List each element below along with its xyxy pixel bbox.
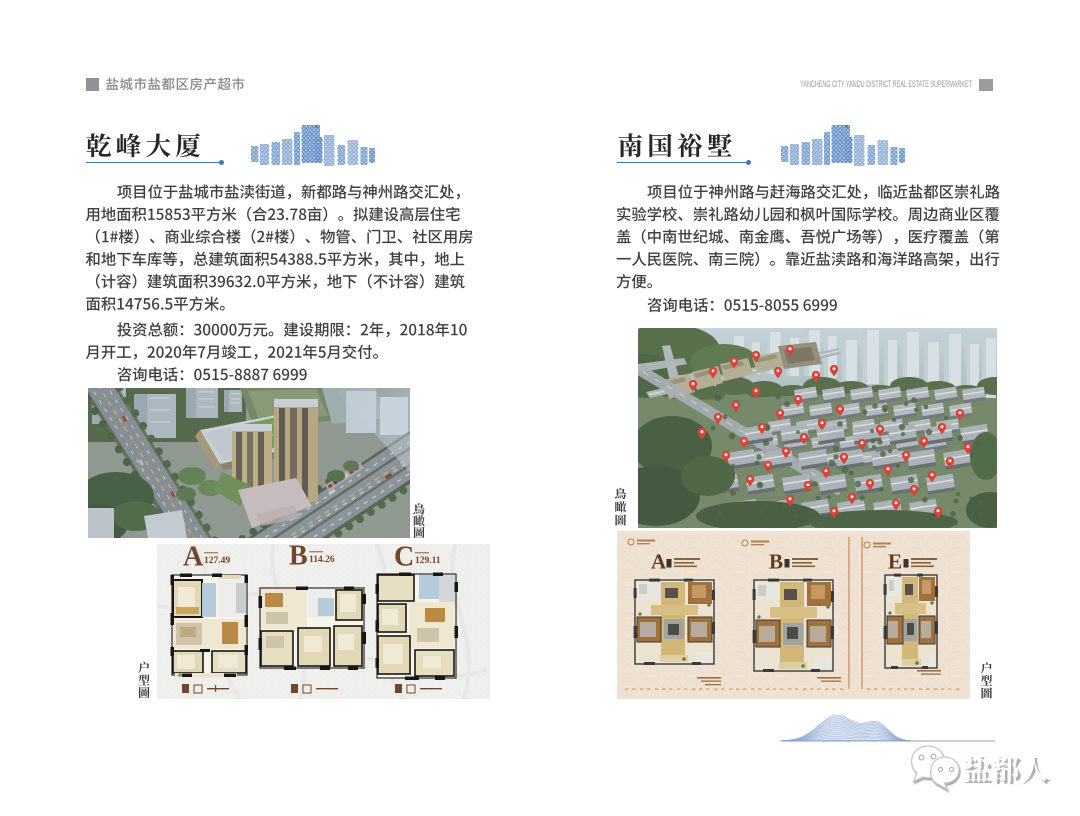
svg-text:YANCHENG CITY YANDU DISTRICT R: YANCHENG CITY YANDU DISTRICT REAL ESTATE… <box>800 79 972 89</box>
